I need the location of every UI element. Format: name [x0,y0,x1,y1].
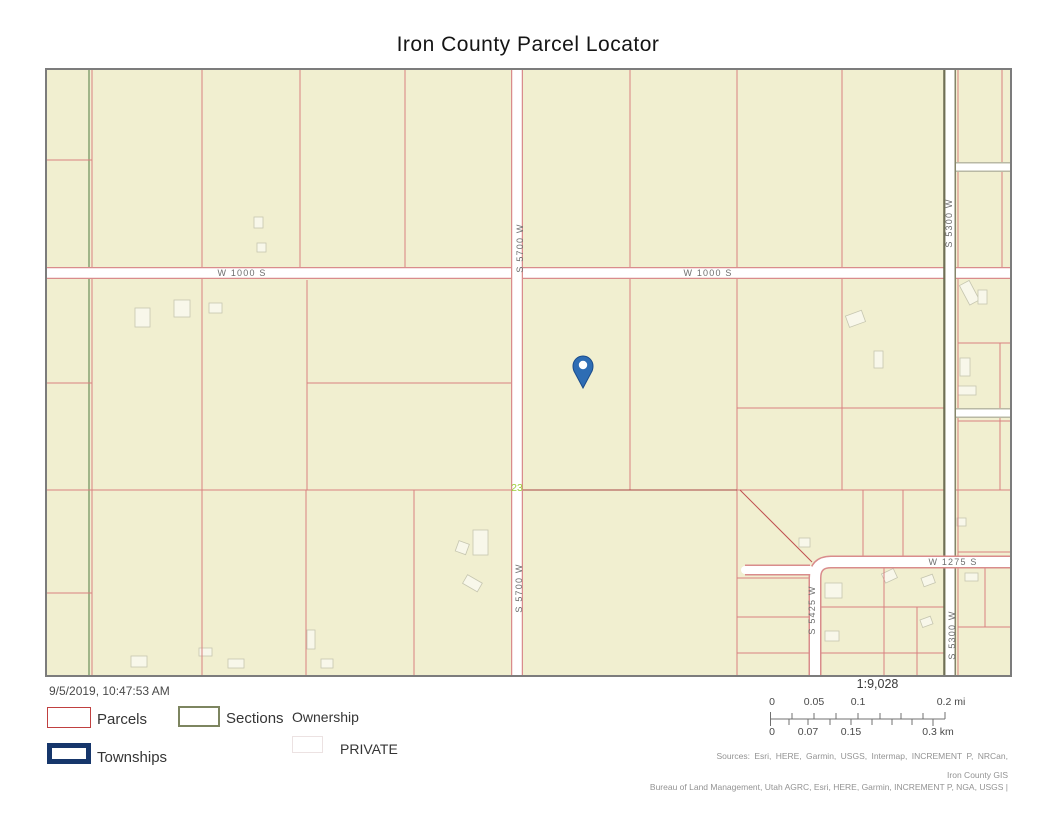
scale-bar-ticks [770,711,985,727]
page-title: Iron County Parcel Locator [0,33,1056,57]
parcels-label: Parcels [97,711,147,728]
scalebar-mi-label-0: 0 [769,696,775,708]
parcel-map: W 1000 S W 1000 S S 5700 W S 5700 W S 53… [47,70,1010,675]
sections-swatch [178,706,220,727]
timestamp: 9/5/2019, 10:47:53 AM [49,684,170,698]
scalebar-km-label-2: 0.15 [841,726,861,738]
townships-label: Townships [97,749,167,766]
scale-bar: 0 0.05 0.1 0.2 mi [770,694,1000,744]
roads [47,70,1010,675]
private-label: PRIVATE [340,741,398,757]
townships-swatch [47,743,91,764]
road-label-w1000s-west: W 1000 S [217,268,266,278]
scale-ratio: 1:9,028 [770,677,985,691]
private-swatch [292,736,323,753]
road-label-s5425w: S 5425 W [807,585,817,634]
section-number-label: 23 [511,482,523,494]
road-label-w1275s: W 1275 S [928,557,977,567]
ownership-title: Ownership [292,709,359,725]
road-label-s5700w-south: S 5700 W [514,563,524,612]
scalebar-km-label-0: 0 [769,726,775,738]
attribution-line-3: Bureau of Land Management, Utah AGRC, Es… [400,782,1008,792]
parcels-swatch [47,707,91,728]
attribution-line-1: Sources: Esri, HERE, Garmin, USGS, Inter… [400,751,1008,761]
parcel-line-diagonal [740,490,812,562]
scalebar-km-label-3: 0.3 km [922,726,954,738]
scalebar-km-label-1: 0.07 [798,726,818,738]
attribution-line-2: Iron County GIS [400,770,1008,780]
map-viewport[interactable]: W 1000 S W 1000 S S 5700 W S 5700 W S 53… [45,68,1012,677]
sections-label: Sections [226,710,284,727]
scalebar-mi-label-3: 0.2 mi [937,696,966,708]
road-label-s5300w-south: S 5300 W [947,610,957,659]
building-footprints [131,217,987,668]
scalebar-mi-label-1: 0.05 [804,696,824,708]
scalebar-mi-label-2: 0.1 [851,696,866,708]
parcel-lines [47,70,1010,675]
print-page: Iron County Parcel Locator [0,0,1056,816]
road-label-w1000s-east: W 1000 S [683,268,732,278]
road-label-s5700w-north: S 5700 W [515,223,525,272]
location-pin-icon[interactable] [573,356,593,388]
road-label-s5300w-north: S 5300 W [944,198,954,247]
